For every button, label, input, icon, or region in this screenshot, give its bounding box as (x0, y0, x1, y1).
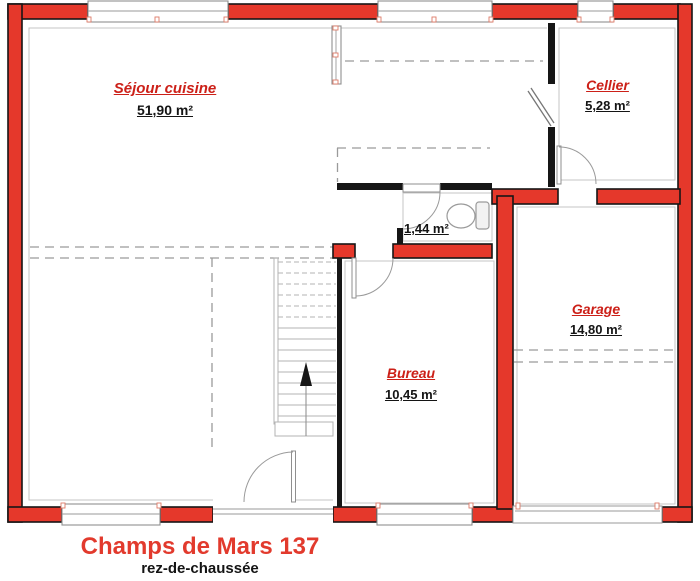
room-label-sejour-cuisine: Séjour cuisine (55, 81, 275, 98)
cellier-window (578, 1, 613, 22)
room-area-garage: 14,80 m² (537, 323, 655, 337)
plan-subtitle: rez-de-chaussée (55, 561, 345, 578)
hall-cellier-wall-lower (548, 127, 555, 187)
stair-bottom-step (275, 422, 333, 436)
plan-title: Champs de Mars 137 (55, 534, 345, 560)
sejour-bottom-window (62, 504, 160, 525)
garage-north-wall-right (597, 189, 680, 204)
garage-outline (517, 207, 675, 504)
room-label-cellier: Cellier (550, 78, 665, 93)
bureau-window (377, 504, 472, 525)
garage-west-wall (497, 196, 513, 509)
stair-direction-arrow-icon (300, 362, 312, 386)
cellier-garage-door-leaf (557, 146, 561, 184)
entrance-door (213, 451, 333, 523)
staircase (274, 258, 336, 436)
bureau-door-arc (356, 258, 393, 296)
left-exterior-wall (8, 4, 22, 522)
entrance-door-arc (244, 452, 293, 502)
room-area-sejour-cuisine: 51,90 m² (55, 103, 275, 118)
cellier-garage-door-arc (559, 147, 596, 184)
garage-door (513, 503, 662, 523)
wc-north-wall-right (440, 183, 492, 190)
room-area-bureau: 10,45 m² (352, 388, 470, 402)
right-exterior-wall (678, 4, 692, 522)
wc-south-wall (393, 244, 492, 258)
wc-north-wall-left (337, 183, 403, 190)
wc-dashed-line (337, 148, 490, 182)
room-label-bureau: Bureau (352, 366, 470, 381)
bureau-west-wall (337, 256, 342, 509)
interior-walls (337, 23, 555, 509)
wc-door-leaf (403, 184, 440, 192)
room-area-wc: 1,44 m² (404, 222, 494, 236)
hall-cellier-wall-upper (548, 23, 555, 84)
room-label-garage: Garage (537, 302, 655, 317)
stair-rail (274, 258, 278, 424)
room-area-cellier: 5,28 m² (550, 99, 665, 113)
bureau-door-leaf (352, 258, 356, 298)
bureau-outline (345, 261, 494, 503)
bureau-north-wall-stub (333, 244, 355, 258)
floor-plan-canvas: Séjour cuisine 51,90 m² Cellier 5,28 m² … (0, 0, 700, 581)
